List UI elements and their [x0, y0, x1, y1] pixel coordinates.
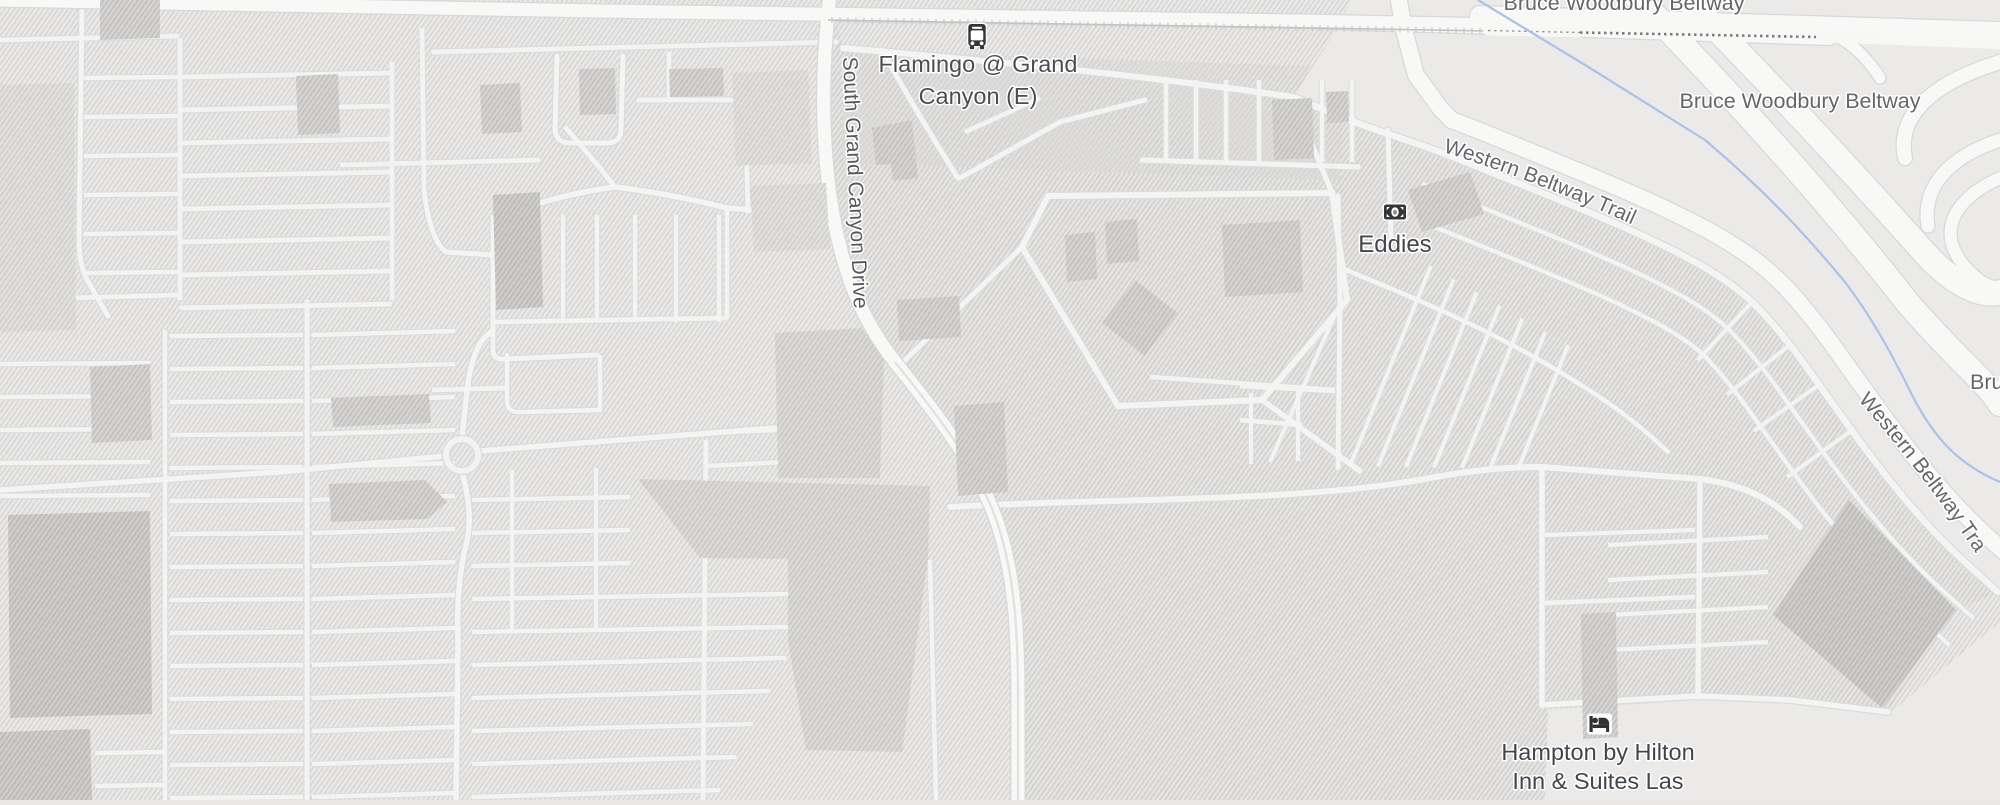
- svg-text:Bruce Woodbury Beltway: Bruce Woodbury Beltway: [1504, 0, 1745, 15]
- svg-text:Flamingo @ Grand: Flamingo @ Grand: [879, 51, 1078, 77]
- svg-text:Inn & Suites Las: Inn & Suites Las: [1512, 768, 1683, 794]
- svg-text:Hampton by Hilton: Hampton by Hilton: [1501, 739, 1694, 765]
- svg-text:Bru: Bru: [1970, 370, 2000, 394]
- svg-text:Eddies: Eddies: [1358, 231, 1431, 258]
- svg-text:Bruce Woodbury Beltway: Bruce Woodbury Beltway: [1680, 89, 1921, 113]
- svg-text:Canyon (E): Canyon (E): [919, 83, 1038, 109]
